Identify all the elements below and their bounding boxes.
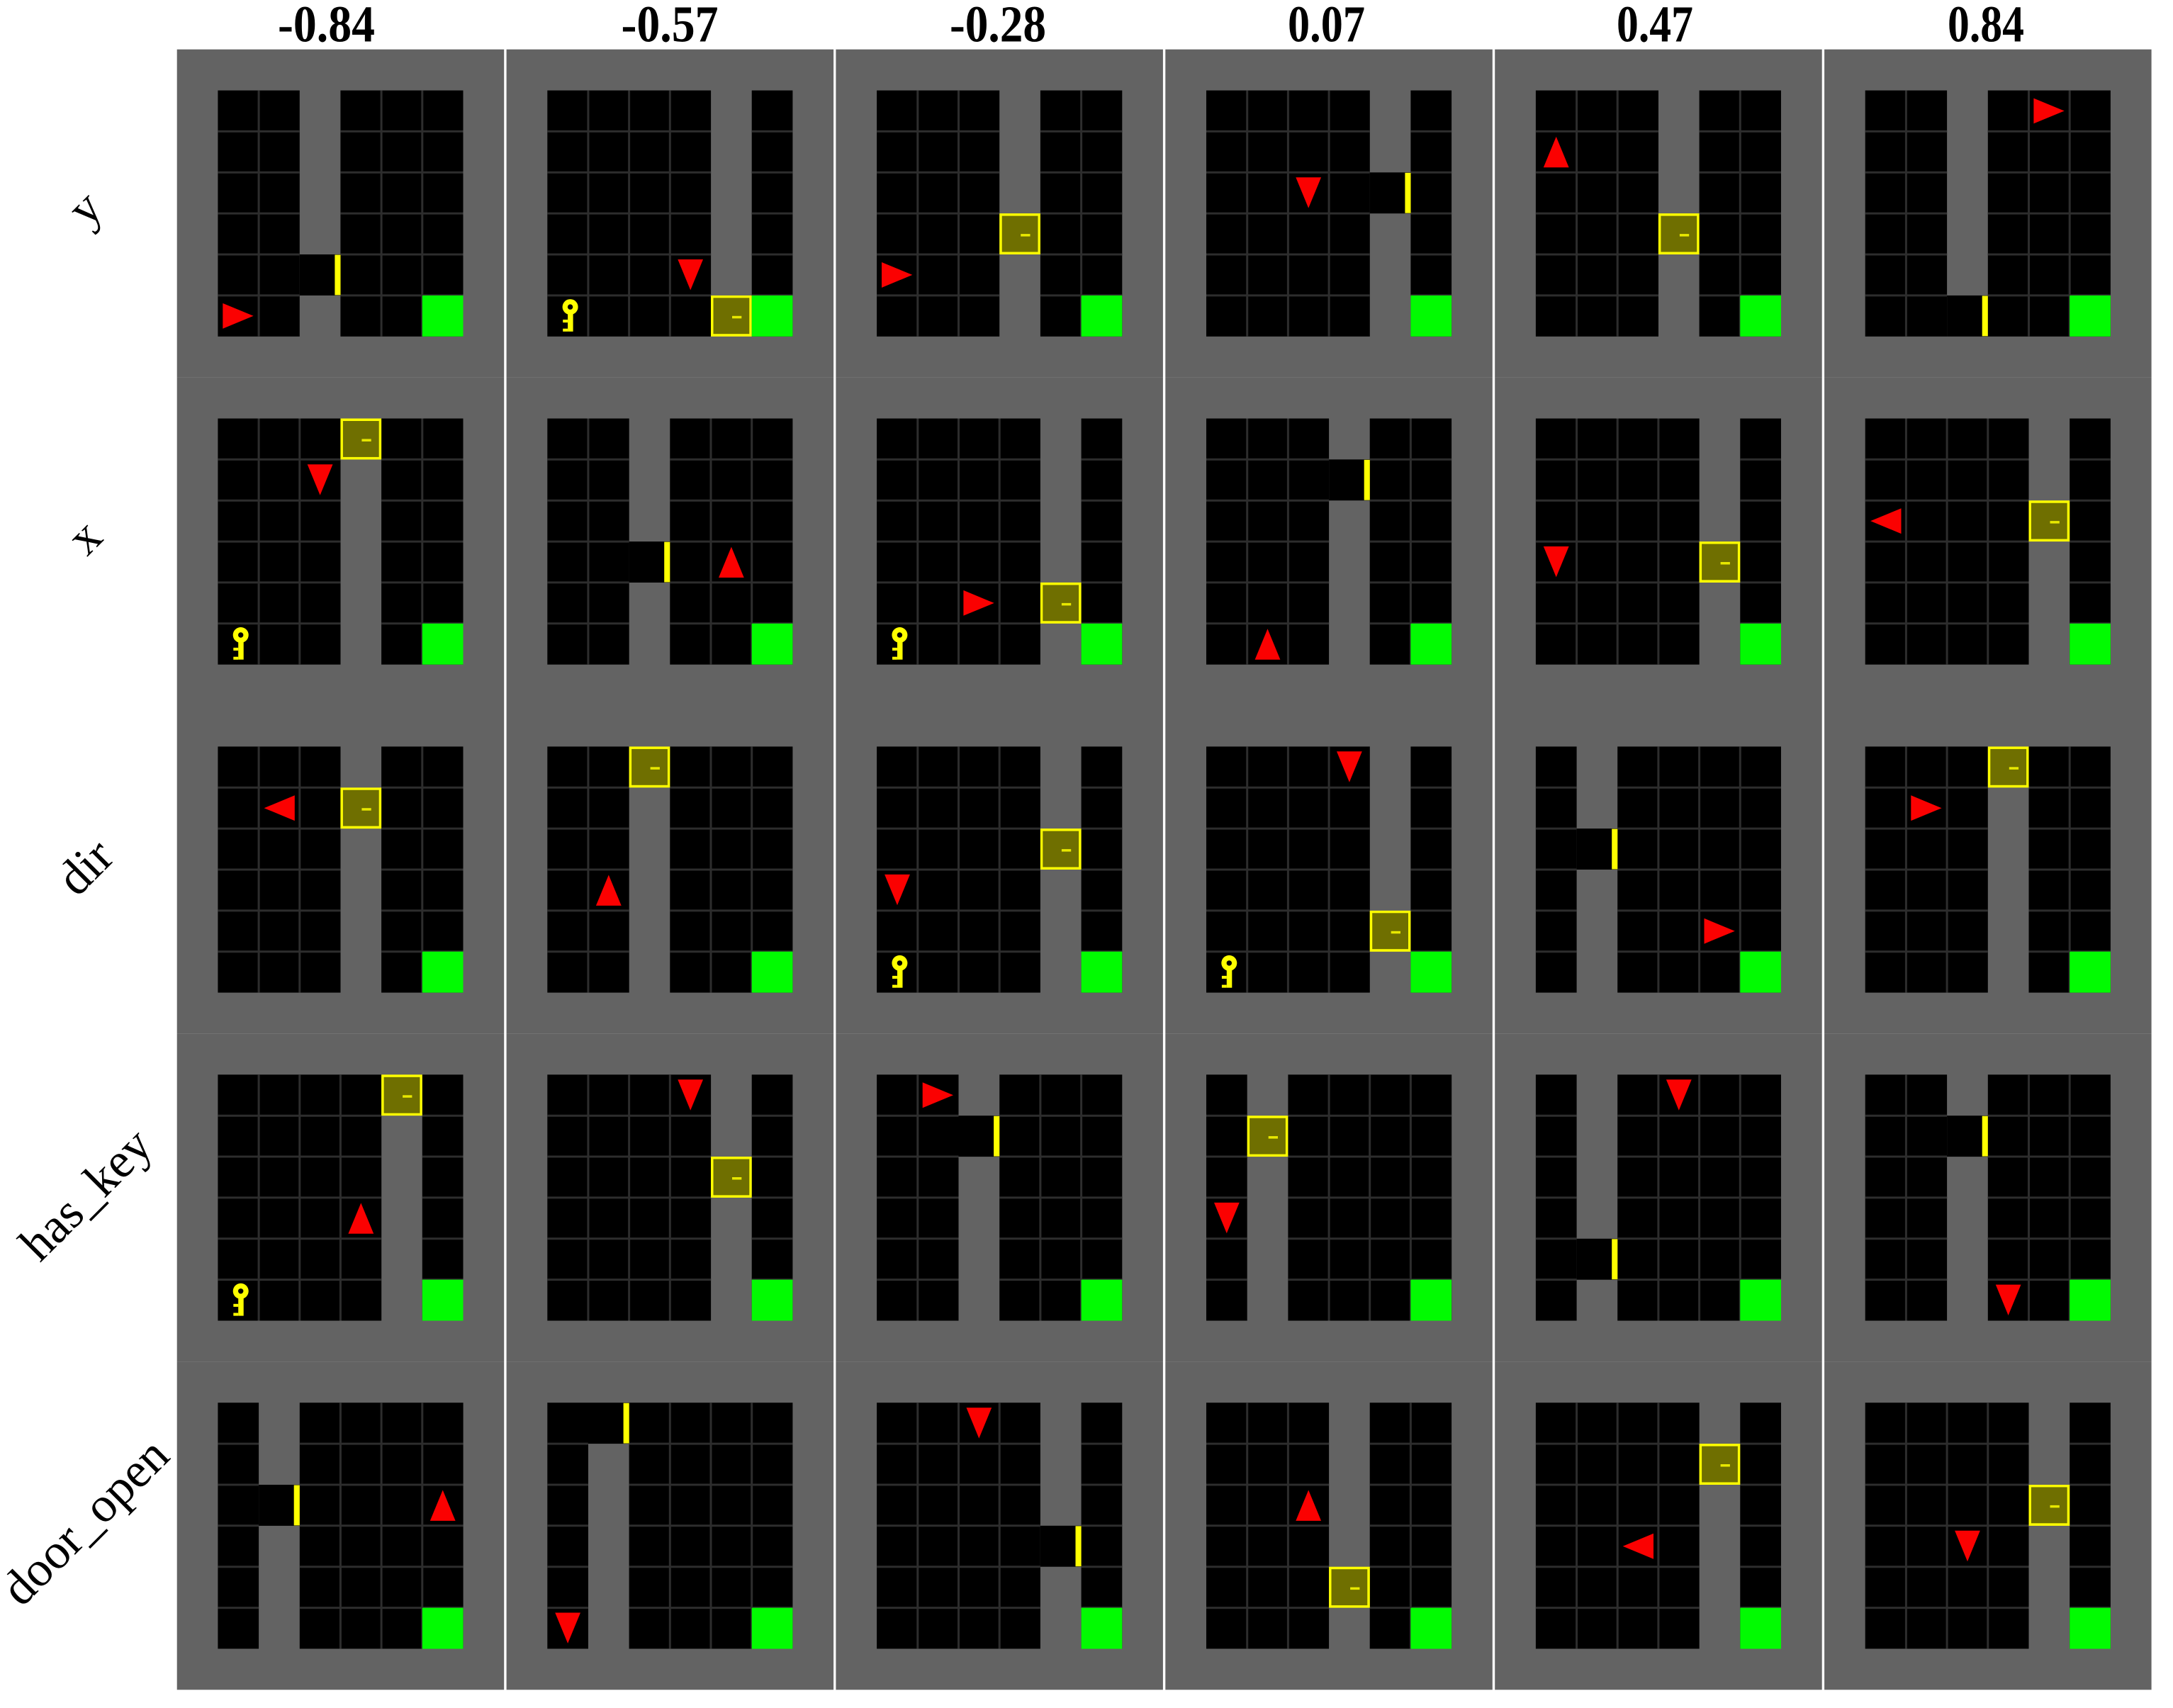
svg-text:0.84: 0.84	[1948, 0, 2024, 53]
svg-text:0.47: 0.47	[1617, 0, 1693, 53]
svg-text:0.07: 0.07	[1288, 0, 1365, 53]
svg-text:-0.57: -0.57	[622, 0, 719, 53]
svg-text:-0.84: -0.84	[278, 0, 375, 53]
svg-text:-0.28: -0.28	[950, 0, 1046, 53]
